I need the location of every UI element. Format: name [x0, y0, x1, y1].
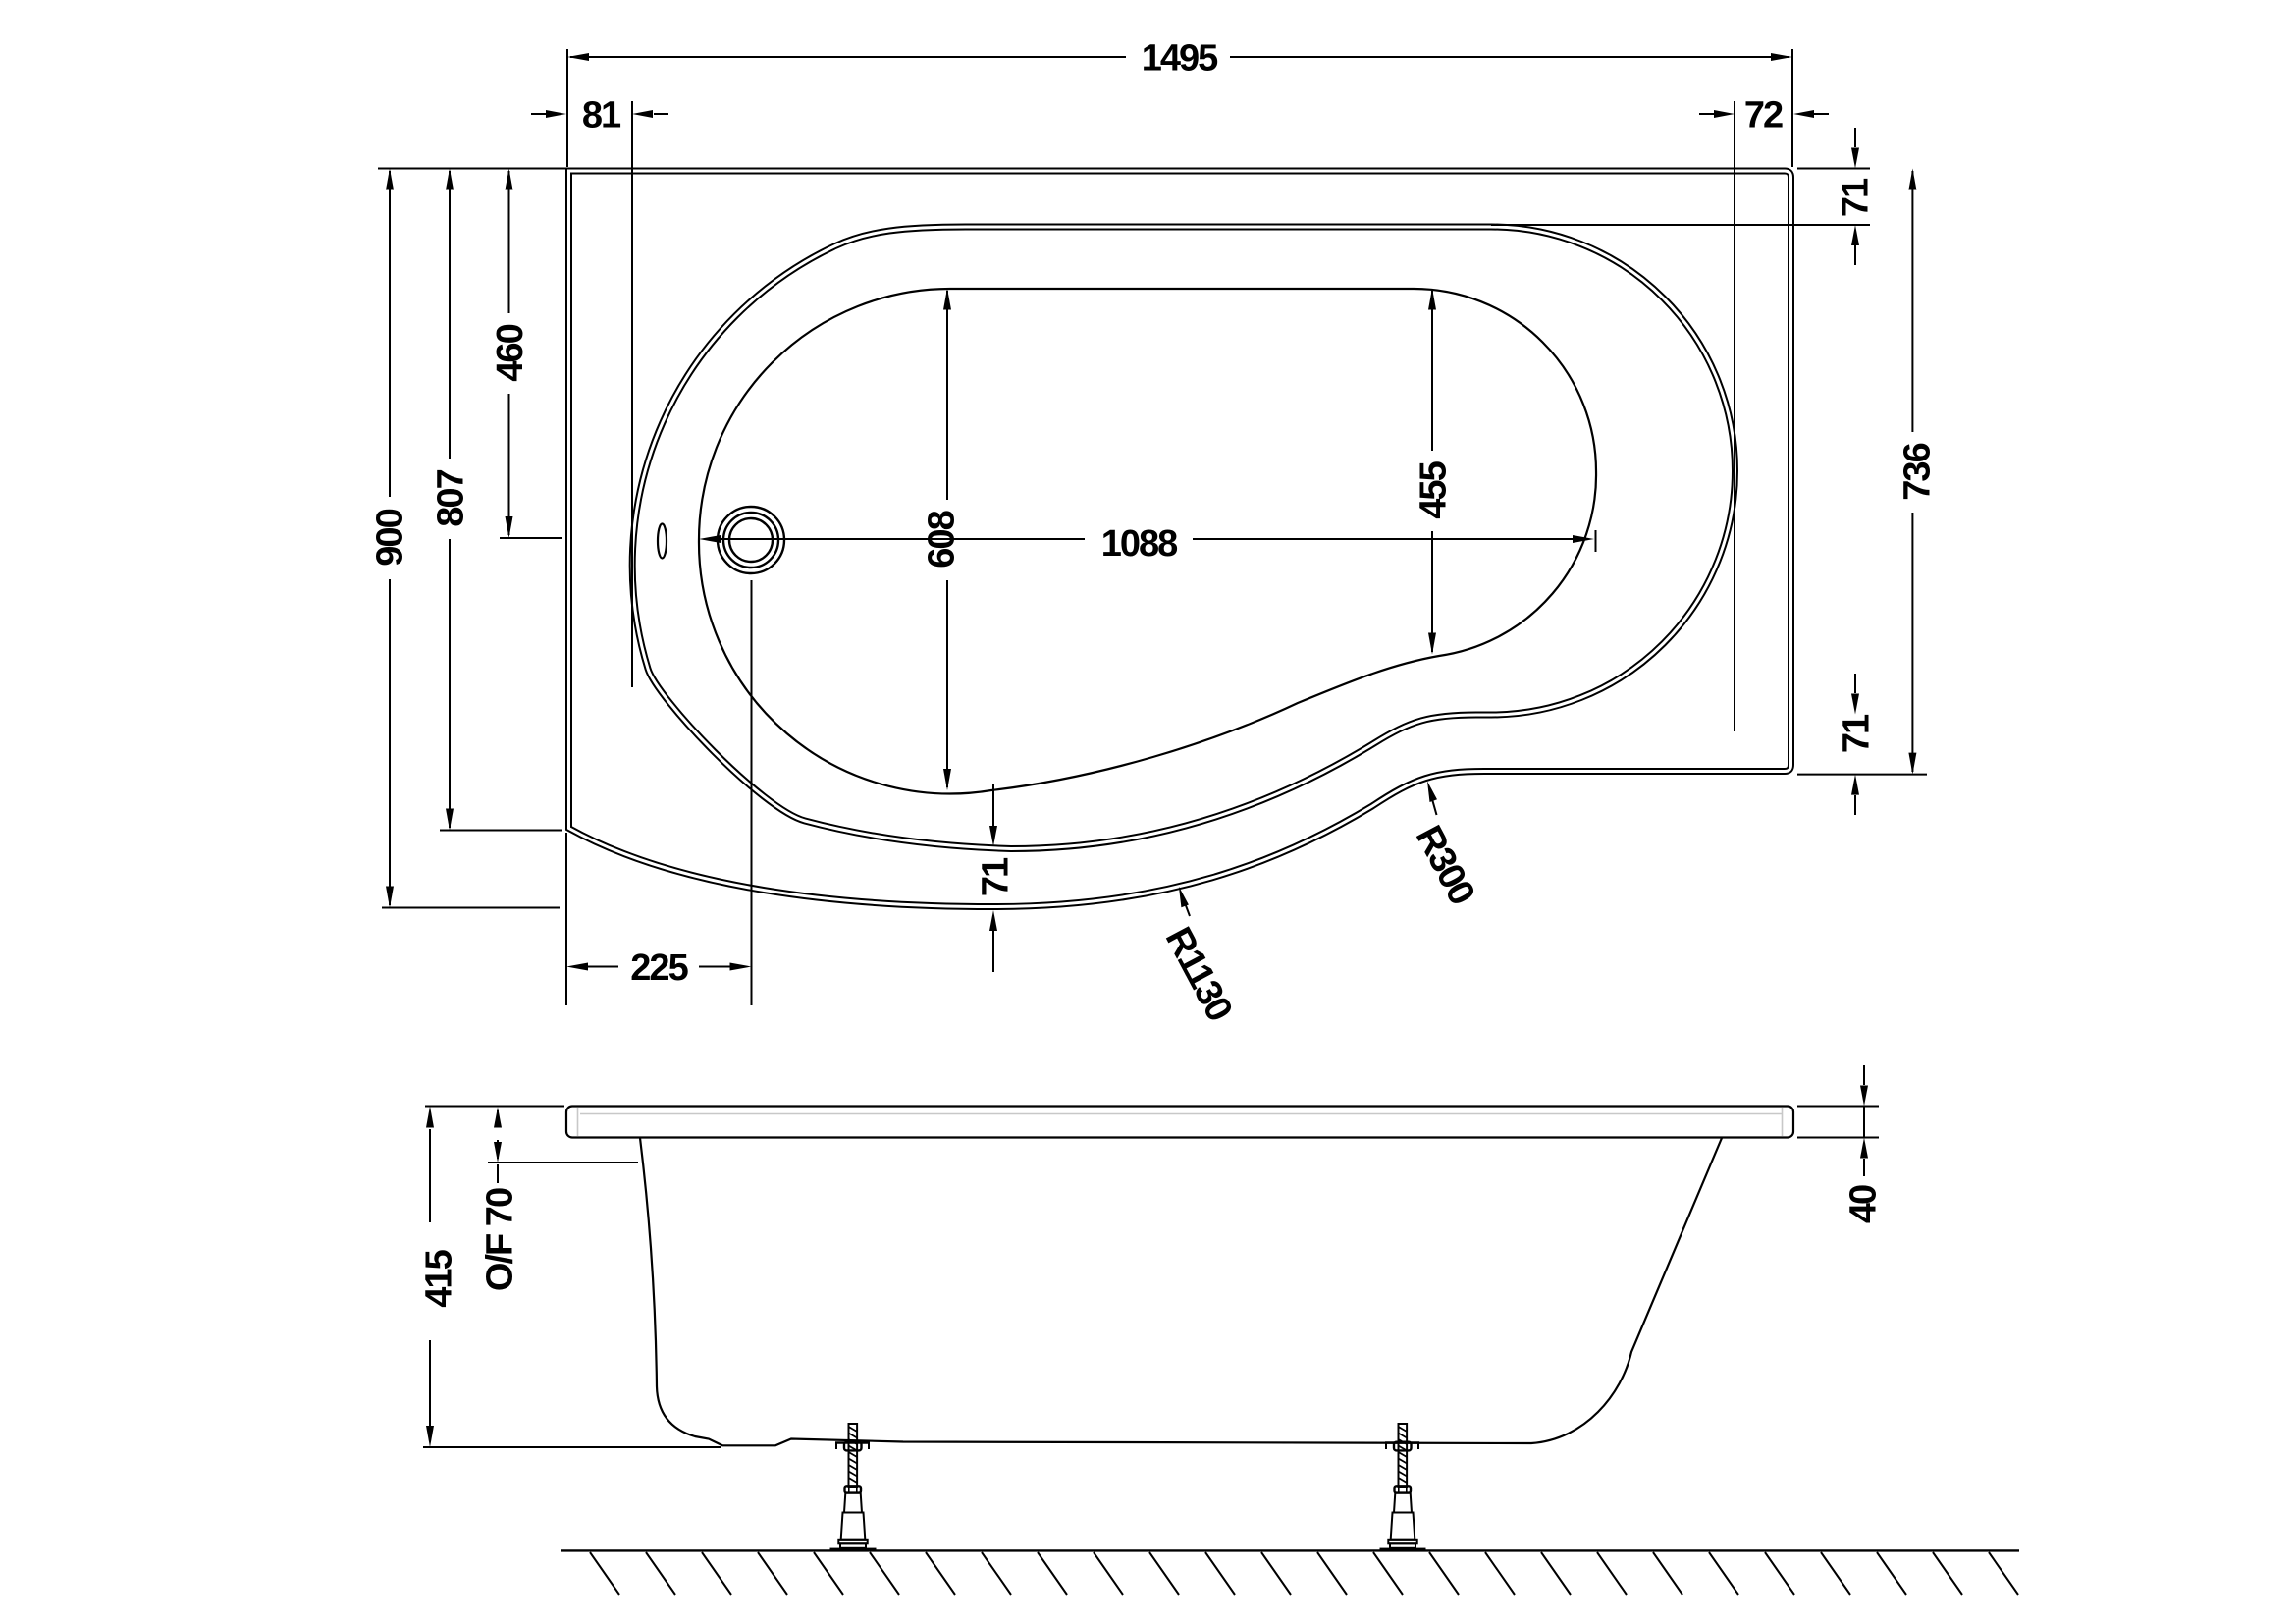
svg-text:1495: 1495	[1142, 38, 1218, 80]
svg-text:81: 81	[582, 95, 621, 136]
svg-text:900: 900	[370, 509, 411, 566]
svg-text:225: 225	[630, 947, 688, 989]
svg-text:71: 71	[1836, 178, 1877, 217]
svg-text:608: 608	[922, 511, 963, 568]
svg-text:736: 736	[1897, 443, 1939, 500]
svg-text:71: 71	[976, 857, 1017, 896]
svg-text:807: 807	[431, 469, 472, 526]
svg-text:72: 72	[1744, 95, 1783, 136]
svg-text:O/F 70: O/F 70	[480, 1188, 521, 1291]
svg-text:71: 71	[1837, 714, 1878, 753]
svg-text:415: 415	[419, 1249, 460, 1307]
svg-text:460: 460	[490, 324, 531, 381]
svg-text:455: 455	[1414, 460, 1455, 518]
svg-text:1088: 1088	[1101, 523, 1177, 565]
svg-text:40: 40	[1843, 1185, 1885, 1223]
